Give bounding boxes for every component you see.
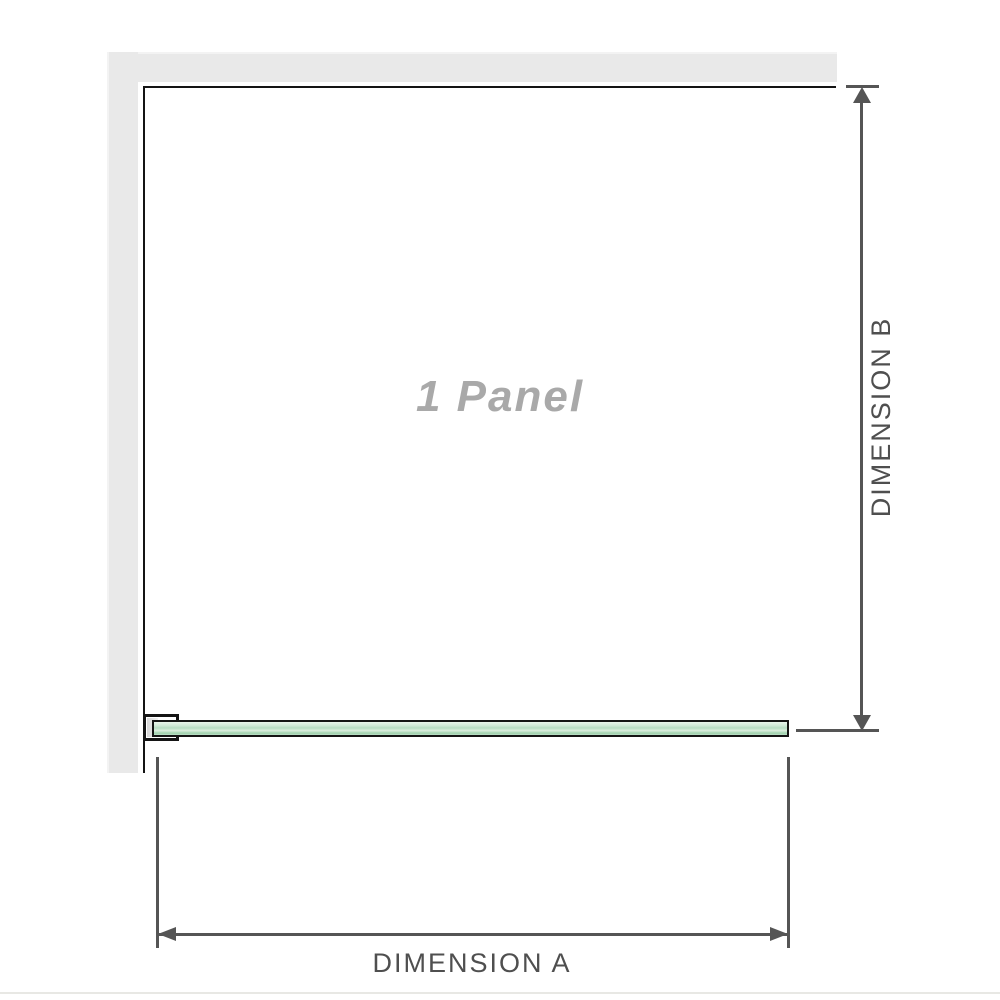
dimension-a-label: DIMENSION A: [262, 948, 682, 979]
panel-count-label: 1 Panel: [350, 372, 650, 422]
wall-left: [107, 52, 138, 773]
dimension-a-line: [158, 933, 788, 936]
arrow-up-icon: [853, 87, 871, 103]
panel-area-left-border: [143, 86, 145, 773]
arrow-down-icon: [853, 715, 871, 731]
shower-panel-diagram: 1 Panel DIMENSION B DIMENSION A: [0, 0, 1000, 1000]
wall-top: [107, 52, 837, 82]
panel-area-top-border: [143, 86, 836, 88]
dimension-b-label: DIMENSION B: [866, 297, 896, 537]
glass-panel: [152, 720, 789, 737]
bottom-separator: [0, 992, 1000, 994]
dimension-b-line: [860, 99, 863, 719]
dimension-a-right-tick: [787, 757, 790, 948]
dimension-a-left-tick: [156, 757, 159, 948]
arrow-left-icon: [158, 927, 176, 941]
arrow-right-icon: [770, 927, 788, 941]
